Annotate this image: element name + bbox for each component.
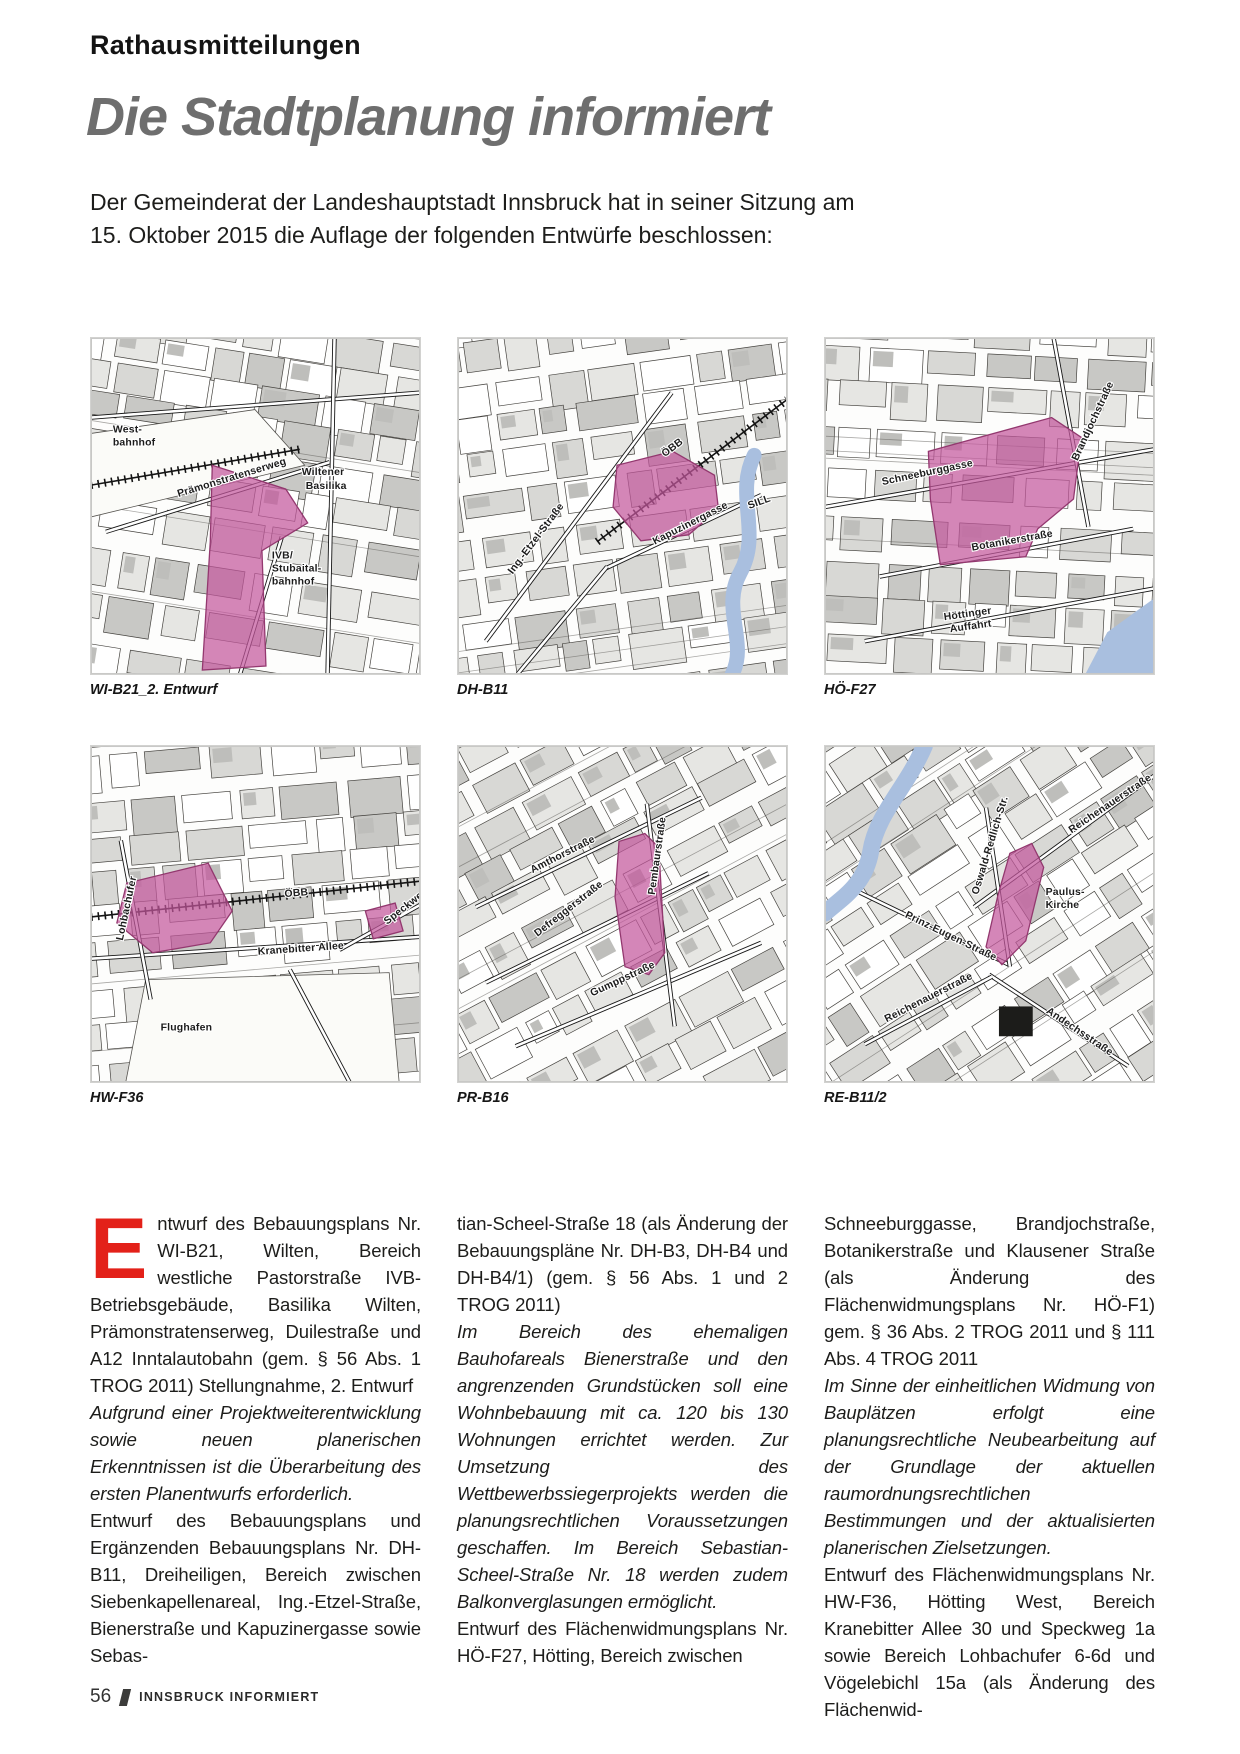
article-paragraph: Entwurf des Bebauungsplans und Ergänzend… [90,1507,421,1669]
map-caption: HÖ-F27 [824,682,1155,698]
map-label: Kirche [1046,900,1080,911]
dark-building [999,1006,1033,1036]
intro-line-2: 15. Oktober 2015 die Auflage der folgend… [90,222,773,248]
map-label: bahnhof [113,437,156,448]
map-canvas: AmthorstraßeDefreggerstraßeGumppstraßePe… [458,746,787,1082]
magazine-page: Rathausmitteilungen Die Stadtplanung inf… [0,0,1240,1754]
article-paragraph: Entwurf des Flächenwidmungsplans Nr. HÖ-… [457,1615,788,1669]
footer-divider-icon [119,1689,131,1706]
map-caption: RE-B11/2 [824,1090,1155,1106]
article-paragraph: tian-Scheel-Straße 18 (als Änderung der … [457,1210,788,1318]
article-column: tian-Scheel-Straße 18 (als Änderung der … [457,1210,788,1723]
map-image: West-bahnhofPrämonstratenserwegWiltenerB… [90,337,421,675]
article-paragraph: Entwurf des Flächenwidmungsplans Nr. HW-… [824,1561,1155,1723]
article-column: Entwurf des Bebauungsplans Nr. WI-B21, W… [90,1210,421,1723]
article-column: Schneeburggasse, Brandjochstraße, Botani… [824,1210,1155,1723]
map-caption: HW-F36 [90,1090,421,1106]
page-title: Die Stadtplanung informiert [86,86,770,148]
maps-row-2: ÖBBKranebitter AlleeFlughafenLohbachufer… [90,745,1155,1106]
map-canvas: ReichenauerstraßePaulus-KirchePrinz-Euge… [825,746,1154,1082]
article-paragraph: Schneeburggasse, Brandjochstraße, Botani… [824,1210,1155,1372]
page-footer: 56 INNSBRUCK INFORMIERT [90,1686,319,1708]
map-canvas: SchneeburggasseBrandjochstraßeBotanikers… [825,338,1154,674]
map-figure: ReichenauerstraßePaulus-KirchePrinz-Euge… [824,745,1155,1106]
map-figure: AmthorstraßeDefreggerstraßeGumppstraßePe… [457,745,788,1106]
map-caption: PR-B16 [457,1090,788,1106]
map-caption: WI-B21_2. Entwurf [90,682,421,698]
map-label: West- [113,424,143,435]
map-figure: ÖBBKranebitter AlleeFlughafenLohbachufer… [90,745,421,1106]
map-label: Basilika [306,481,347,492]
map-image: ReichenauerstraßePaulus-KirchePrinz-Euge… [824,745,1155,1083]
map-label: IVB/ [272,551,293,562]
article-paragraph-italic: Aufgrund einer Projektweiterentwicklung … [90,1399,421,1507]
map-figure: Ing.-Etzel-StraßeÖBBKapuzinergasseSILLDH… [457,337,788,698]
map-canvas: West-bahnhofPrämonstratenserwegWiltenerB… [91,338,420,674]
map-label: Paulus- [1046,887,1085,898]
map-figure: SchneeburggasseBrandjochstraßeBotanikers… [824,337,1155,698]
map-canvas: ÖBBKranebitter AlleeFlughafenLohbachufer… [91,746,420,1082]
article-columns: Entwurf des Bebauungsplans Nr. WI-B21, W… [90,1210,1155,1723]
article-paragraph-italic: Im Sinne der einheitlichen Widmung von B… [824,1372,1155,1561]
map-image: SchneeburggasseBrandjochstraßeBotanikers… [824,337,1155,675]
map-image: Ing.-Etzel-StraßeÖBBKapuzinergasseSILL [457,337,788,675]
map-figure: West-bahnhofPrämonstratenserwegWiltenerB… [90,337,421,698]
article-paragraph: Entwurf des Bebauungsplans Nr. WI-B21, W… [90,1210,421,1399]
intro-text: Der Gemeinderat der Landeshauptstadt Inn… [90,186,855,252]
map-label: bahnhof [272,577,315,588]
intro-line-1: Der Gemeinderat der Landeshauptstadt Inn… [90,189,855,215]
article-paragraph-italic: Im Bereich des ehemaligen Bauhofareals B… [457,1318,788,1615]
map-image: ÖBBKranebitter AlleeFlughafenLohbachufer… [90,745,421,1083]
magazine-name: INNSBRUCK INFORMIERT [139,1690,319,1704]
maps-row-1: West-bahnhofPrämonstratenserwegWiltenerB… [90,337,1155,698]
map-canvas: Ing.-Etzel-StraßeÖBBKapuzinergasseSILL [458,338,787,674]
map-label: Wiltener [302,467,345,478]
map-caption: DH-B11 [457,682,788,698]
drop-cap: E [90,1215,147,1283]
map-label: Stubaital- [272,564,322,575]
map-image: AmthorstraßeDefreggerstraßeGumppstraßePe… [457,745,788,1083]
map-label: Flughafen [161,1022,213,1033]
page-number: 56 [90,1686,111,1708]
section-kicker: Rathausmitteilungen [90,30,361,61]
